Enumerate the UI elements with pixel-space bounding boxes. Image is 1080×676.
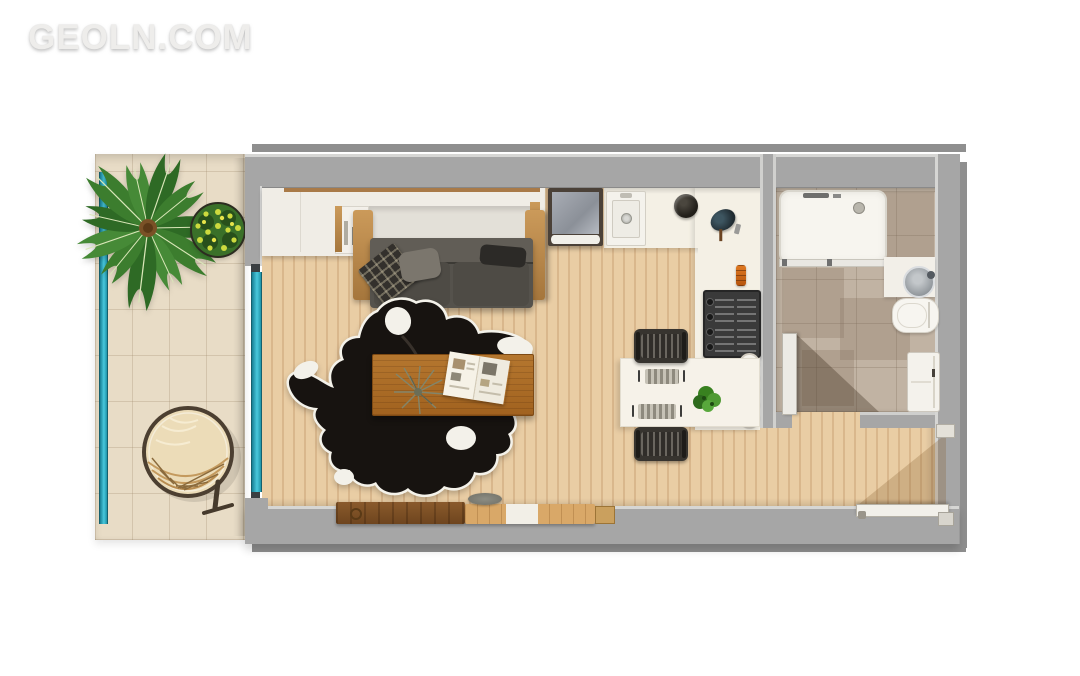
washer-latch	[932, 369, 935, 377]
wall-outline-right	[960, 162, 967, 548]
shower-glass	[779, 259, 885, 267]
cooktop-knob	[706, 328, 714, 336]
shower-drain	[853, 202, 865, 214]
wall-outline-top	[252, 144, 966, 152]
glass-clamp	[782, 259, 787, 266]
fridge-unit	[548, 188, 603, 246]
wall-partition-bathroom	[760, 154, 776, 428]
dining-chair-top	[634, 329, 688, 363]
sideboard-endcap	[595, 506, 615, 524]
sideboard-left	[336, 502, 465, 524]
knife	[683, 370, 685, 382]
burner-grate	[737, 295, 756, 322]
door-frame-block	[936, 424, 955, 438]
wall-top	[245, 154, 959, 188]
sink-faucet	[620, 193, 632, 198]
washer-seam	[911, 381, 931, 383]
washer-edge	[933, 356, 935, 408]
cooking-pot	[674, 194, 698, 218]
basin-faucet	[927, 271, 935, 279]
chair-stand	[215, 482, 218, 508]
watermark-logo: GEOLN.COM	[28, 18, 253, 58]
window-pillar	[245, 186, 262, 266]
toilet-tank-line	[928, 302, 930, 328]
wardrobe-back-edge	[284, 188, 540, 192]
kitchen-sink	[606, 191, 646, 246]
entrance-door-swing-shadow	[850, 425, 950, 507]
magazine-page-right	[474, 356, 511, 404]
shower	[779, 190, 887, 264]
door-hinge	[938, 512, 954, 526]
fridge-front-strip	[551, 235, 600, 244]
wardrobe-post-left	[335, 206, 342, 252]
door-handle	[858, 511, 866, 519]
sideboard-decor-tuft	[468, 493, 502, 505]
place-setting-bottom	[638, 404, 676, 419]
wall-outline-bottom	[252, 544, 966, 552]
shower-faucet	[803, 193, 829, 198]
knife	[680, 405, 682, 417]
niche-decor	[344, 221, 348, 245]
fork	[632, 405, 634, 417]
burner-grate	[715, 295, 734, 322]
window-frame-top	[251, 264, 260, 272]
potted-plant	[690, 380, 724, 414]
washing-machine	[907, 352, 940, 412]
glass-clamp	[827, 259, 832, 266]
spice-jar	[736, 265, 746, 286]
magazine	[443, 351, 511, 404]
toilet	[892, 298, 939, 333]
tile-shade	[884, 192, 934, 258]
fork	[638, 370, 640, 382]
burner-grate	[715, 325, 734, 352]
shower-faucet-handle	[833, 194, 841, 198]
sofa-pillow-dark	[479, 244, 527, 268]
kettle-handle	[719, 229, 722, 241]
wood-knot	[350, 508, 362, 520]
fridge-top	[552, 192, 599, 234]
cooktop-knob	[706, 343, 714, 351]
place-setting-top	[645, 369, 679, 384]
tile-shade	[782, 268, 844, 338]
chair-seat	[641, 334, 681, 358]
cooktop-knob	[706, 313, 714, 321]
floor-plan-canvas: GEOLN.COM	[0, 0, 1080, 676]
sideboard-cushion	[506, 504, 538, 524]
hanging-chair	[132, 396, 248, 522]
sliding-glass-door	[251, 272, 262, 492]
gas-cooktop	[703, 290, 761, 358]
cooktop-knob	[706, 298, 714, 306]
counter-shadow	[604, 248, 698, 254]
sideboard-right	[465, 504, 595, 524]
burner-grate	[737, 325, 756, 352]
sink-drain	[621, 213, 632, 224]
dining-chair-bottom	[634, 427, 688, 461]
window-stub-bottom	[245, 498, 268, 544]
vanity-shelf	[884, 257, 935, 297]
bathroom-door	[782, 333, 797, 415]
wardrobe-seam	[300, 192, 301, 252]
toilet-seat	[897, 303, 927, 328]
flowering-bush	[186, 198, 250, 262]
chair-seat	[641, 432, 681, 456]
entrance-door	[856, 504, 949, 517]
dried-plant	[390, 364, 450, 420]
